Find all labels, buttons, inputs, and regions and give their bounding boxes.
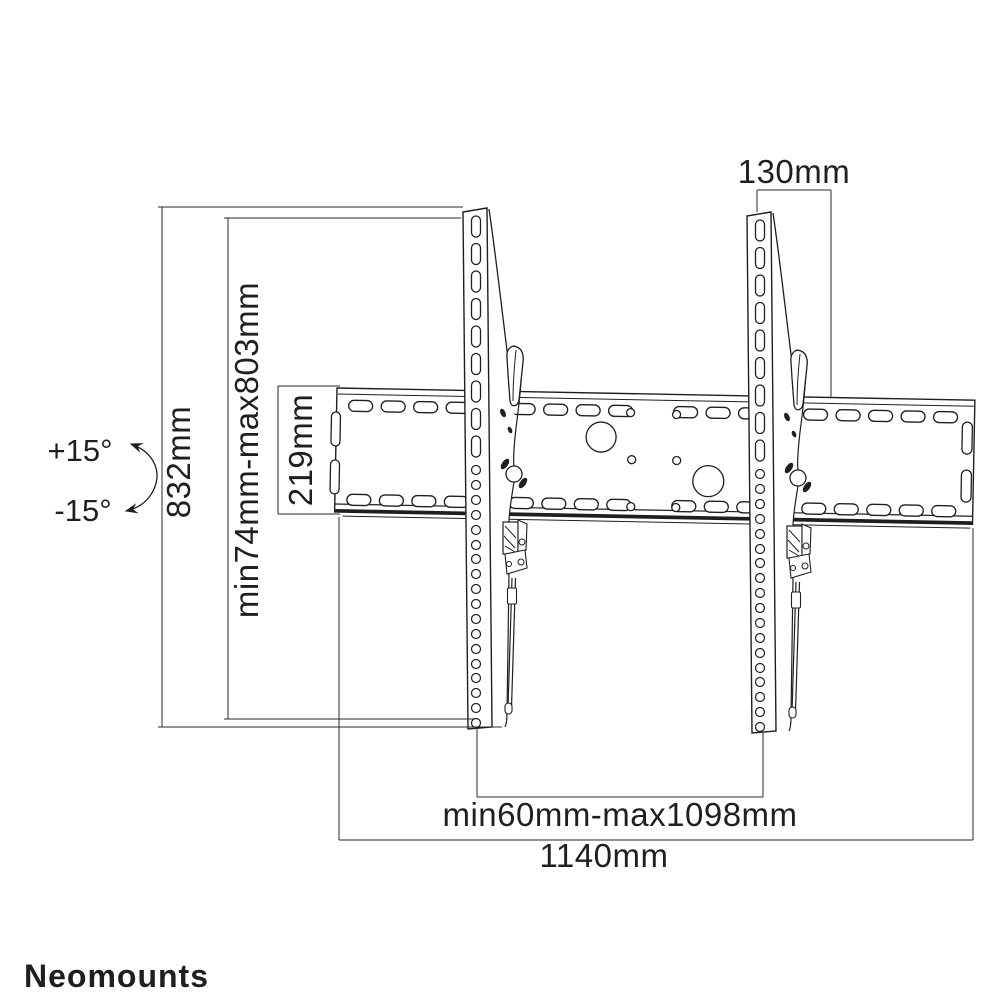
dim-total-width	[339, 517, 973, 840]
wall-plate	[330, 388, 975, 528]
right-tv-bracket	[747, 212, 813, 733]
dim-label-total-width: 1140mm	[540, 837, 669, 874]
tilt-indicator: +15° -15°	[48, 433, 157, 528]
dim-width-range	[477, 729, 763, 797]
dim-label-top-offset: 130mm	[738, 153, 851, 190]
tilt-down-label: -15°	[54, 493, 111, 528]
wall-mount-diagram: 832mm min74mm-max803mm 219mm 130mm min60…	[0, 0, 1004, 1004]
tilt-arc-arrow-icon	[126, 444, 157, 511]
dim-label-total-height: 832mm	[160, 406, 197, 519]
dim-label-width-range: min60mm-max1098mm	[442, 796, 797, 833]
left-tv-bracket	[463, 208, 529, 729]
dim-label-height-range: min74mm-max803mm	[228, 282, 265, 618]
technical-drawing-page: 832mm min74mm-max803mm 219mm 130mm min60…	[0, 0, 1004, 1004]
tilt-up-label: +15°	[48, 433, 113, 468]
brand-logo: Neomounts	[24, 958, 209, 994]
dim-label-plate-height: 219mm	[282, 394, 319, 507]
